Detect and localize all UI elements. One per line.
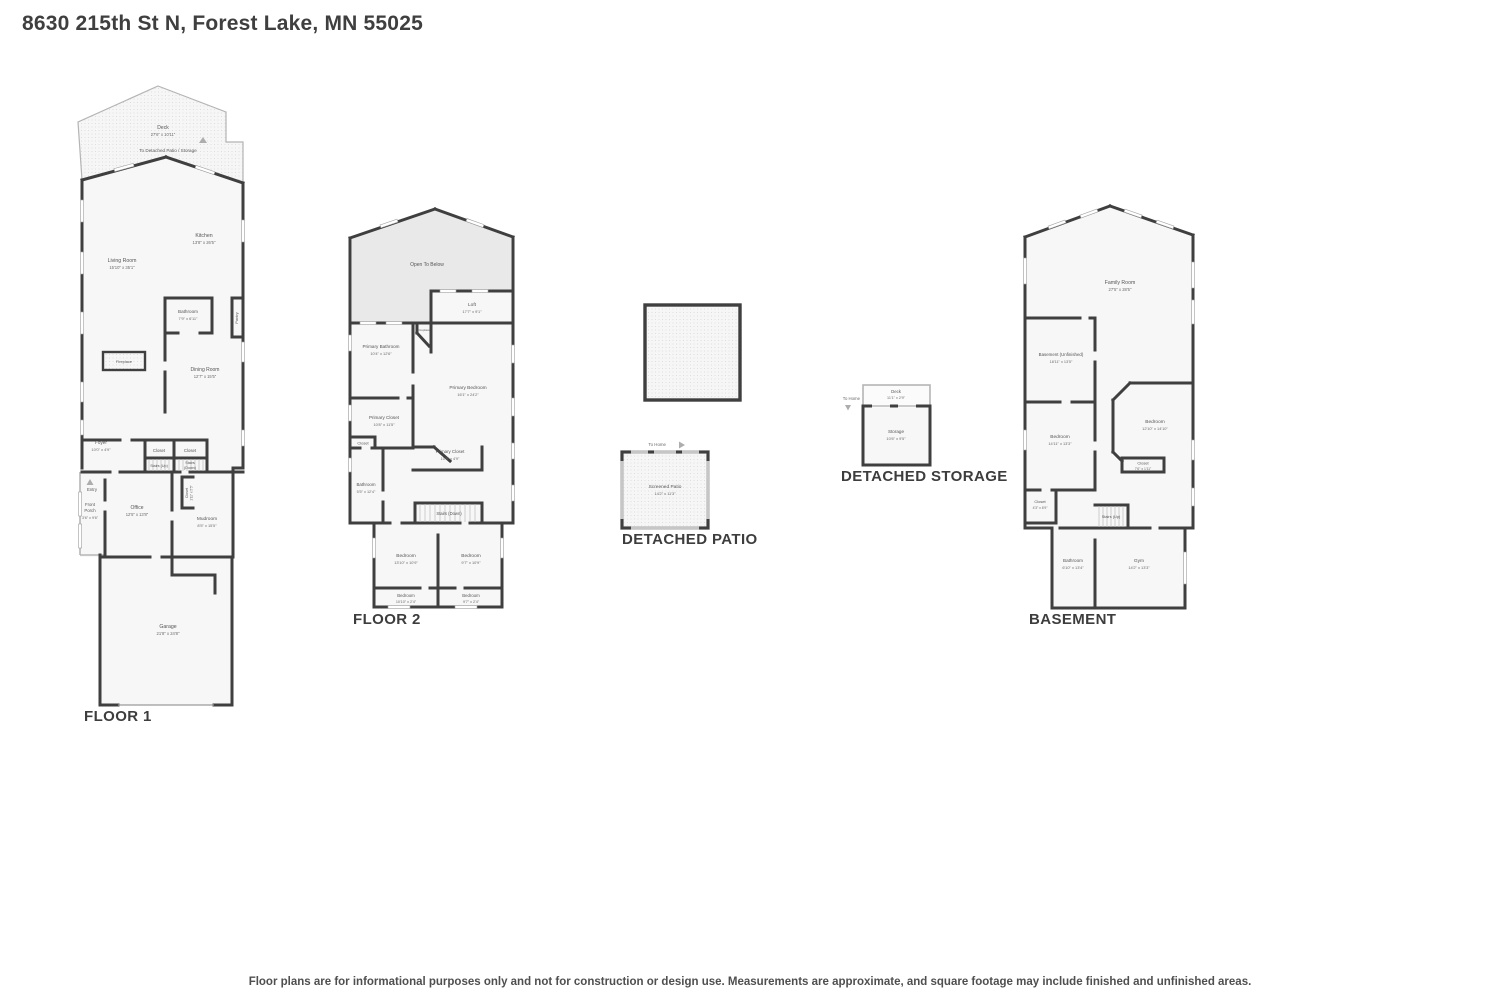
room-label-entry: Entry — [87, 487, 98, 492]
room-label-fireplace: Fireplace — [116, 359, 132, 364]
room-label-foyer: Foyer — [95, 440, 107, 445]
floorplan-page: 8630 215th St N, Forest Lake, MN 55025 — [0, 0, 1500, 1000]
floor1-heading: FLOOR 1 — [84, 708, 152, 725]
room-dims-bsmt-closet2: 4'3" x 6'9" — [1033, 506, 1049, 510]
room-label-dining: Dining Room — [191, 367, 220, 373]
to-home-label-storage: To Home — [843, 396, 861, 401]
room-dims-storage: 10'6" x 9'5" — [886, 436, 906, 441]
room-label-bed2: Bedroom — [461, 553, 480, 559]
room-dims-bsmt-bath: 6'10" x 13'4" — [1062, 565, 1084, 570]
room-dims-pcloset2: 10'8" x 4'9" — [441, 457, 460, 461]
room-label-pcloset2: Primary Closet — [436, 449, 466, 454]
arrow-down-icon — [845, 405, 851, 411]
room-label-fireplace2: Fireplace — [418, 328, 431, 332]
room-label-closet-a: Closet — [153, 448, 166, 453]
room-dims-bed3: 10'10" x 2'4" — [396, 600, 417, 604]
room-dims-dining: 12'7" x 15'5" — [194, 374, 217, 379]
floor2-heading: FLOOR 2 — [353, 611, 421, 628]
room-dims-bsmt-bed2: 12'10" x 14'10" — [1142, 426, 1168, 431]
room-dims-mudroom: 8'5" x 15'5" — [197, 523, 217, 528]
arrow-right-icon — [679, 442, 685, 449]
room-dims-office: 12'5" x 13'8" — [126, 512, 149, 517]
room-label-porch-2: Porch — [84, 508, 96, 513]
room-label-stairs-down2: Stairs (Down) — [436, 511, 462, 516]
room-dims-pbed: 16'1" x 24'2" — [457, 392, 479, 397]
detached-patio-heading: DETACHED PATIO — [622, 531, 758, 548]
room-label-gym: Gym — [1134, 558, 1144, 564]
room-dims-pcloset1: 10'8" x 11'5" — [373, 422, 395, 427]
room-label-loft: Loft — [468, 302, 477, 308]
room-dims-porch: 3'6" x 9'6" — [82, 516, 99, 520]
room-label-screened-patio: Screened Patio — [649, 484, 682, 490]
room-label-porch-1: Front — [85, 502, 96, 507]
room-dims-storage-deck: 11'1" x 2'9" — [887, 396, 906, 400]
room-dims-loft: 17'7" x 9'1" — [462, 309, 482, 314]
floor2-plan: Open To Below Loft 17'7" x 9'1" Fireplac… — [335, 198, 530, 623]
to-home-label-patio: To Home — [648, 442, 666, 447]
room-dims-kitchen: 13'8" x 26'5" — [193, 240, 216, 245]
room-label-stairs-up: Stairs (Up) — [150, 464, 168, 468]
room-label-bathroom1: Bathroom — [178, 309, 198, 314]
room-dims-deck: 27'6" x 10'11" — [151, 132, 176, 137]
room-dims-bsmt-bed1: 14'11" x 13'3" — [1048, 441, 1072, 446]
room-dims-bed4: 9'7" x 2'4" — [463, 600, 480, 604]
room-dims-unfinished: 18'11" x 13'5" — [1050, 360, 1073, 364]
room-dims-closet-c: 1'11" x 5'5" — [190, 485, 194, 500]
room-dims-bed1: 13'10" x 10'9" — [394, 560, 418, 565]
detached-storage-plan: To Home Deck 11'1" x 2'9" Storage 10'6" … — [828, 378, 973, 473]
room-label-mudroom: Mudroom — [197, 516, 217, 522]
detached-storage-heading: DETACHED STORAGE — [841, 468, 1008, 485]
screened-patio-area — [622, 452, 708, 528]
room-dims-living: 15'10" x 35'1" — [109, 265, 135, 270]
room-label-closet-small: Closet — [357, 441, 369, 446]
room-label-pcloset1: Primary Closet — [369, 415, 400, 420]
room-label-bsmt-bath: Bathroom — [1063, 558, 1083, 563]
room-label-closet-b: Closet — [184, 448, 197, 453]
room-dims-screened-patio: 14'2" x 11'3" — [654, 491, 676, 496]
room-label-storage: Storage — [888, 429, 905, 434]
basement-plan: Family Room 27'5" x 28'5" Basement (Unfi… — [1010, 198, 1210, 623]
floor1-room-fills — [80, 157, 243, 705]
room-dims-bed2: 9'7" x 10'9" — [461, 560, 481, 565]
room-dims-bath2: 5'5" x 12'4" — [357, 490, 376, 494]
room-label-bed3: Bedroom — [397, 593, 415, 598]
floor1-plan: Deck 27'6" x 10'11" To Detached Patio / … — [60, 78, 260, 728]
room-label-stairs-down-1: Stairs — [185, 461, 195, 465]
patio-square — [645, 305, 740, 400]
room-label-living: Living Room — [108, 258, 137, 264]
room-label-pbed: Primary Bedroom — [449, 385, 486, 391]
room-dims-foyer: 10'0" x 4'9" — [91, 447, 111, 452]
room-label-bath2: Bathroom — [356, 482, 375, 487]
room-label-office: Office — [131, 505, 144, 511]
room-label-stairs-up-bsmt: Stairs (Up) — [1102, 514, 1121, 519]
room-label-bsmt-bed1: Bedroom — [1050, 434, 1069, 440]
room-dims-pbath: 10'4" x 12'6" — [370, 351, 392, 356]
basement-heading: BASEMENT — [1029, 611, 1116, 628]
disclaimer-text: Floor plans are for informational purpos… — [0, 976, 1500, 988]
page-title: 8630 215th St N, Forest Lake, MN 55025 — [22, 12, 423, 36]
room-label-bsmt-closet2: Closet — [1034, 499, 1046, 504]
room-label-kitchen: Kitchen — [195, 233, 212, 239]
room-label-bed4: Bedroom — [462, 593, 480, 598]
room-label-family: Family Room — [1105, 280, 1136, 286]
room-label-stairs-down-2: (Down) — [184, 466, 196, 470]
room-label-bsmt-closet1: Closet — [1137, 461, 1149, 466]
label-open-to-below: Open To Below — [410, 262, 444, 268]
room-label-closet-c: Closet — [185, 488, 189, 498]
room-label-pantry: Pantry — [234, 312, 239, 324]
room-dims-gym: 14'2" x 13'3" — [1128, 565, 1150, 570]
room-label-pbath: Primary Bathroom — [362, 344, 399, 349]
room-label-bsmt-bed2: Bedroom — [1145, 419, 1164, 425]
room-dims-bathroom1: 7'9" x 6'11" — [179, 316, 199, 321]
room-label-bed1: Bedroom — [396, 553, 415, 559]
room-label-garage: Garage — [159, 624, 176, 630]
room-label-unfinished: Basement (Unfinished) — [1039, 352, 1084, 357]
room-dims-garage: 21'8" x 24'8" — [157, 631, 180, 636]
room-dims-family: 27'5" x 28'5" — [1109, 287, 1132, 292]
detached-patio-plan: To Home Screened Patio 14'2" x 11'3" — [610, 295, 770, 535]
to-detached-label: To Detached Patio / Storage — [139, 148, 197, 153]
room-label-storage-deck: Deck — [891, 389, 902, 394]
room-dims-bsmt-closet1: 7'6" x 1'11" — [1135, 467, 1152, 471]
basement-room-fills — [1025, 206, 1193, 608]
room-label-deck: Deck — [157, 125, 169, 131]
